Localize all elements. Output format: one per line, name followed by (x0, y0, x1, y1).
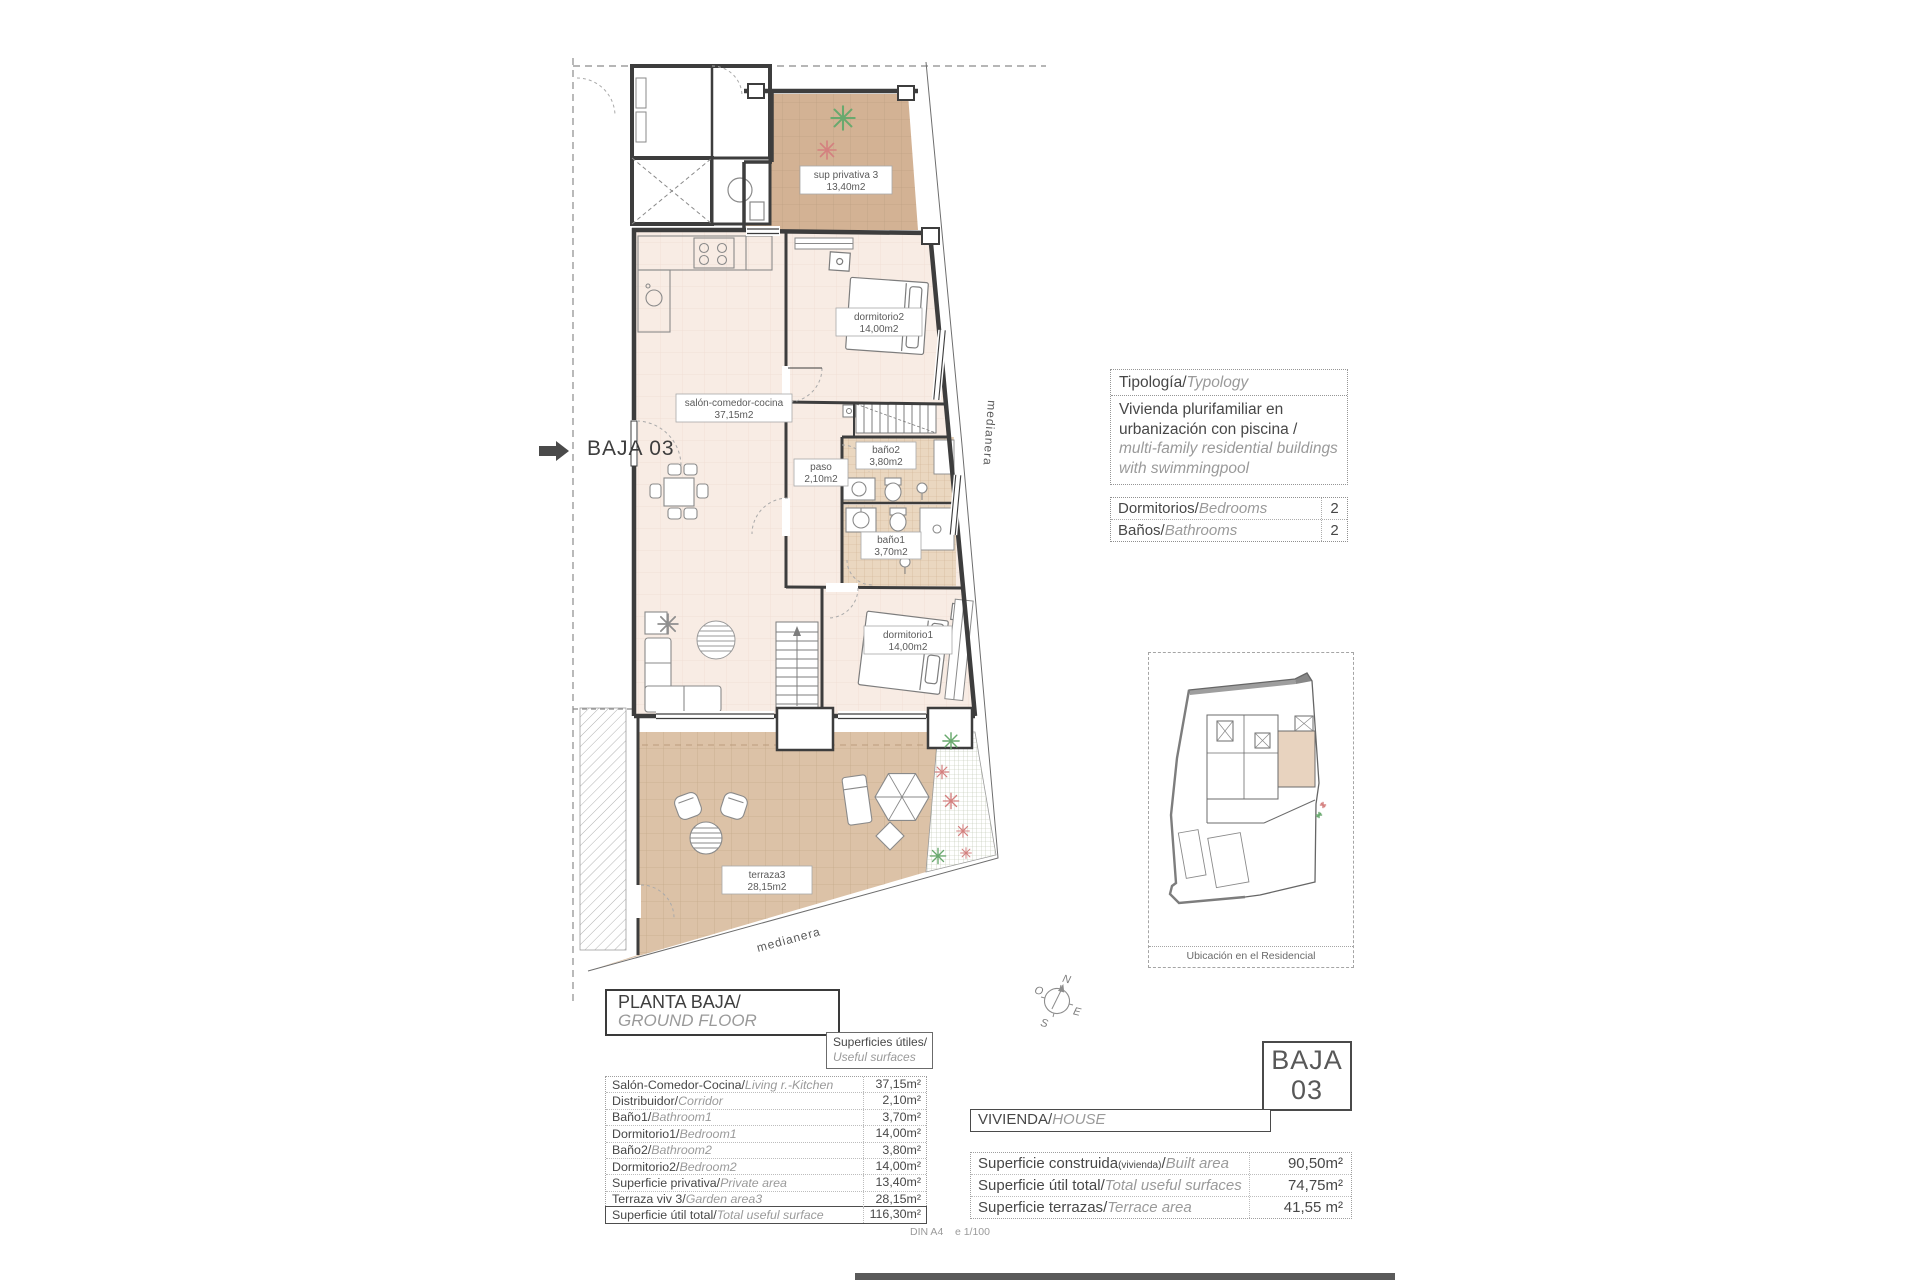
house-header-bar: VIVIENDA/HOUSE (970, 1109, 1271, 1132)
table-row: Baño1/Bathroom1 3,70m² (606, 1109, 926, 1125)
row-value: 74,75m² (1249, 1175, 1351, 1196)
flower-bed (926, 732, 996, 872)
row-label-en: Garden area3 (686, 1192, 762, 1206)
useful-surfaces-header-es: Superficies útiles/ (833, 1035, 932, 1050)
room-label-bano2: baño2 3,80m2 (856, 442, 916, 469)
room-name: dormitorio1 (883, 630, 933, 641)
typology-header: Tipología/Typology (1111, 370, 1347, 396)
medianera-label-bottom: medianera (755, 924, 822, 955)
plant-icon (658, 614, 678, 634)
room-label-dormitorio1: dormitorio1 14,00m2 (864, 626, 952, 654)
room-name: baño2 (872, 445, 900, 456)
unit-pointer-label: BAJA 03 (587, 437, 675, 461)
table-row: Distribuidor/Corridor 2,10m² (606, 1092, 926, 1108)
table-row: Superficie construida(vivienda)/Built ar… (971, 1153, 1351, 1174)
row-value: 13,40m² (863, 1175, 926, 1190)
room-name: salón-comedor-cocina (685, 398, 784, 409)
row-label-en: Bedroom1 (679, 1127, 736, 1141)
terrace-floor (594, 732, 938, 969)
row-value: 3,70m² (863, 1110, 926, 1125)
room-label-terraza3: terraza3 28,15m2 (722, 866, 812, 894)
typology-box: Tipología/Typology Vivienda plurifamilia… (1110, 369, 1348, 485)
row-value: 90,50m² (1249, 1153, 1351, 1174)
house-surfaces-table: Superficie construida(vivienda)/Built ar… (970, 1152, 1352, 1219)
row-label-es: Superficie privativa/ (612, 1176, 720, 1190)
table-row: Dormitorios/Bedrooms 2 (1111, 498, 1347, 519)
row-value: 37,15m² (863, 1077, 926, 1092)
table-row: Baño2/Bathroom2 3,80m² (606, 1142, 926, 1158)
bottom-crop-artifact (855, 1273, 1395, 1280)
row-value: 116,30m² (863, 1207, 926, 1223)
room-area: 14,00m2 (860, 324, 899, 335)
room-area: 3,80m2 (869, 457, 903, 468)
room-area: 14,00m2 (889, 642, 928, 653)
typology-line-2: urbanización con piscina / (1119, 420, 1339, 440)
compass-icon: N E O S (1026, 967, 1090, 1037)
typology-line-1: Vivienda plurifamiliar en (1119, 400, 1339, 420)
row-label-es: Salón-Comedor-Cocina/ (612, 1078, 745, 1092)
closet2-icon (795, 238, 853, 249)
party-wall-hatch (580, 708, 626, 950)
row-value: 14,00m² (863, 1159, 926, 1174)
room-area: 37,15m2 (715, 410, 754, 421)
row-value: 14,00m² (863, 1126, 926, 1141)
row-label-es: Superficie construida (978, 1155, 1118, 1172)
house-header-en: HOUSE (1052, 1111, 1105, 1128)
useful-surfaces-header-box: Superficies útiles/ Useful surfaces (826, 1032, 933, 1069)
room-name: paso (810, 462, 832, 473)
row-label-en: Corridor (678, 1094, 723, 1108)
table-row: Superficie privativa/Private area 13,40m… (606, 1174, 926, 1190)
room-label-sup-privativa: sup privativa 3 13,40m2 (800, 166, 892, 194)
room-area: 13,40m2 (827, 182, 866, 193)
table-row: Terraza viv 3/Garden area3 28,15m² (606, 1191, 926, 1207)
room-label-paso: paso 2,10m2 (794, 459, 848, 486)
table-row: Dormitorio2/Bedroom2 14,00m² (606, 1158, 926, 1174)
useful-surfaces-table: Salón-Comedor-Cocina/Living r.-Kitchen 3… (605, 1076, 927, 1224)
row-label-es: Baño2/ (612, 1143, 651, 1157)
room-label-dormitorio2: dormitorio2 14,00m2 (836, 308, 922, 336)
count-label-es: Baños/ (1118, 522, 1165, 539)
site-plan-drawing (1149, 653, 1353, 945)
room-name: dormitorio2 (854, 312, 904, 323)
sheet-format-note: DIN A4 e 1/100 (850, 1226, 1050, 1238)
medianera-label-right: medianera (980, 400, 999, 467)
row-label-en: Living r.-Kitchen (745, 1078, 833, 1092)
useful-surfaces-header-en: Useful surfaces (833, 1050, 932, 1065)
house-header-es: VIVIENDA/ (978, 1111, 1052, 1128)
page: sup privativa 3 13,40m2 dormitorio2 14,0… (0, 0, 1920, 1280)
row-value: 2,10m² (863, 1093, 926, 1108)
row-value: 41,55 m² (1249, 1197, 1351, 1218)
floor-title-box: PLANTA BAJA/ GROUND FLOOR (605, 989, 840, 1036)
row-label-en: Private area (720, 1176, 787, 1190)
row-value: 3,80m² (863, 1143, 926, 1158)
row-label-en: Total useful surface (717, 1208, 824, 1222)
site-location-box: Ubicación en el Residencial (1148, 652, 1354, 968)
unit-pointer-arrow-icon (539, 446, 556, 456)
floor-plan: sup privativa 3 13,40m2 dormitorio2 14,0… (0, 0, 1920, 1280)
room-name: sup privativa 3 (814, 170, 879, 181)
unit-badge: BAJA 03 (1262, 1041, 1352, 1111)
table-row-total: Superficie útil total/Total useful surfa… (605, 1206, 927, 1224)
row-label-es: Superficie útil total (978, 1177, 1101, 1194)
typology-line-3: multi-family residential buildings (1119, 439, 1339, 459)
table-row: Dormitorio1/Bedroom1 14,00m² (606, 1125, 926, 1141)
row-label-es: Superficie terrazas (978, 1199, 1103, 1216)
row-label-en: Built area (1166, 1155, 1229, 1172)
typology-body: Vivienda plurifamiliar en urbanización c… (1111, 396, 1347, 484)
count-label-en: Bathrooms (1165, 522, 1238, 539)
compass-w: O (1033, 984, 1045, 998)
table-row: Baños/Bathrooms 2 (1111, 519, 1347, 541)
table-row: Superficie útil total/Total useful surfa… (971, 1174, 1351, 1196)
room-area: 2,10m2 (804, 474, 838, 485)
count-value: 2 (1321, 520, 1347, 541)
row-label-es: Terraza viv 3/ (612, 1192, 686, 1206)
row-label-en: Bathroom2 (651, 1143, 712, 1157)
count-label-es: Dormitorios/ (1118, 500, 1199, 517)
neighbour-block (577, 66, 770, 224)
row-label-es: Superficie útil total/ (612, 1208, 717, 1222)
row-value: 28,15m² (863, 1192, 926, 1207)
rug-icon (697, 621, 735, 659)
stairs-upper-icon (843, 404, 936, 433)
typology-line-4: with swimmingpool (1119, 459, 1339, 479)
row-label-en: Terrace area (1107, 1199, 1192, 1216)
row-label-en: Bathroom1 (651, 1110, 712, 1124)
compass-s: S (1039, 1017, 1050, 1031)
floor-title-en: GROUND FLOOR (618, 1012, 838, 1030)
count-label-en: Bedrooms (1199, 500, 1267, 517)
compass-e: E (1072, 1005, 1083, 1019)
row-label-en: Total useful surfaces (1105, 1177, 1242, 1194)
stairs-lower-icon (776, 622, 818, 712)
typology-header-en: Typology (1187, 374, 1249, 391)
typology-header-es: Tipología/ (1119, 374, 1187, 391)
room-name: baño1 (877, 535, 905, 546)
unit-badge-line2: 03 (1264, 1075, 1350, 1105)
unit-pointer-arrowhead-icon (556, 441, 569, 461)
row-label-es: Dormitorio2/ (612, 1160, 679, 1174)
room-label-bano1: baño1 3,70m2 (861, 532, 921, 559)
row-label-es: Distribuidor/ (612, 1094, 678, 1108)
unit-badge-line1: BAJA (1264, 1045, 1350, 1075)
row-label-small: (vivienda) (1118, 1160, 1161, 1171)
table-row: Superficie terrazas/Terrace area 41,55 m… (971, 1196, 1351, 1218)
floor-title-es: PLANTA BAJA/ (618, 993, 838, 1012)
room-area: 28,15m2 (748, 882, 787, 893)
row-label-es: Baño1/ (612, 1110, 651, 1124)
counts-table: Dormitorios/Bedrooms 2 Baños/Bathrooms 2 (1110, 497, 1348, 542)
room-area: 3,70m2 (874, 547, 908, 558)
room-label-salon: salón-comedor-cocina 37,15m2 (676, 394, 792, 422)
row-label-en: Bedroom2 (679, 1160, 736, 1174)
row-label-es: Dormitorio1/ (612, 1127, 679, 1141)
count-value: 2 (1321, 498, 1347, 519)
site-location-caption: Ubicación en el Residencial (1149, 946, 1353, 967)
compass-n: N (1061, 973, 1072, 987)
room-name: terraza3 (749, 870, 786, 881)
table-row: Salón-Comedor-Cocina/Living r.-Kitchen 3… (606, 1077, 926, 1092)
